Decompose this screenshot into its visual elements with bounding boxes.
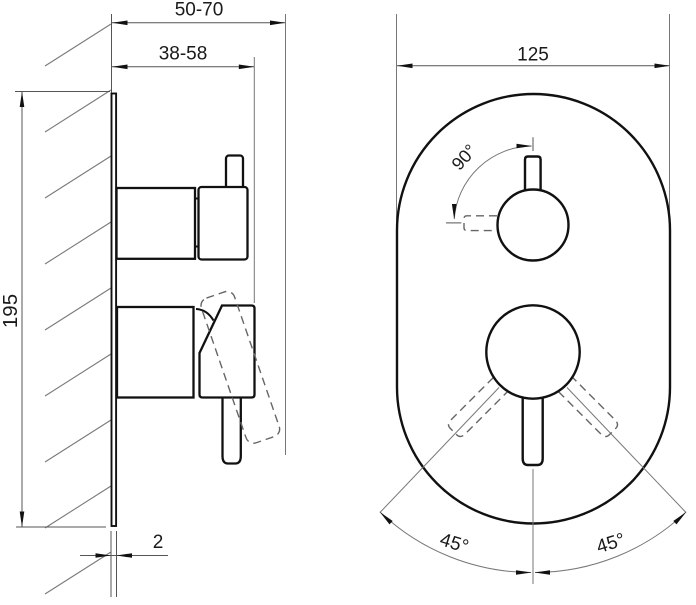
svg-text:125: 125 xyxy=(517,45,549,66)
svg-text:195: 195 xyxy=(0,294,22,328)
svg-text:38-58: 38-58 xyxy=(159,44,208,65)
svg-text:2: 2 xyxy=(153,532,164,553)
svg-text:50-70: 50-70 xyxy=(175,0,224,21)
